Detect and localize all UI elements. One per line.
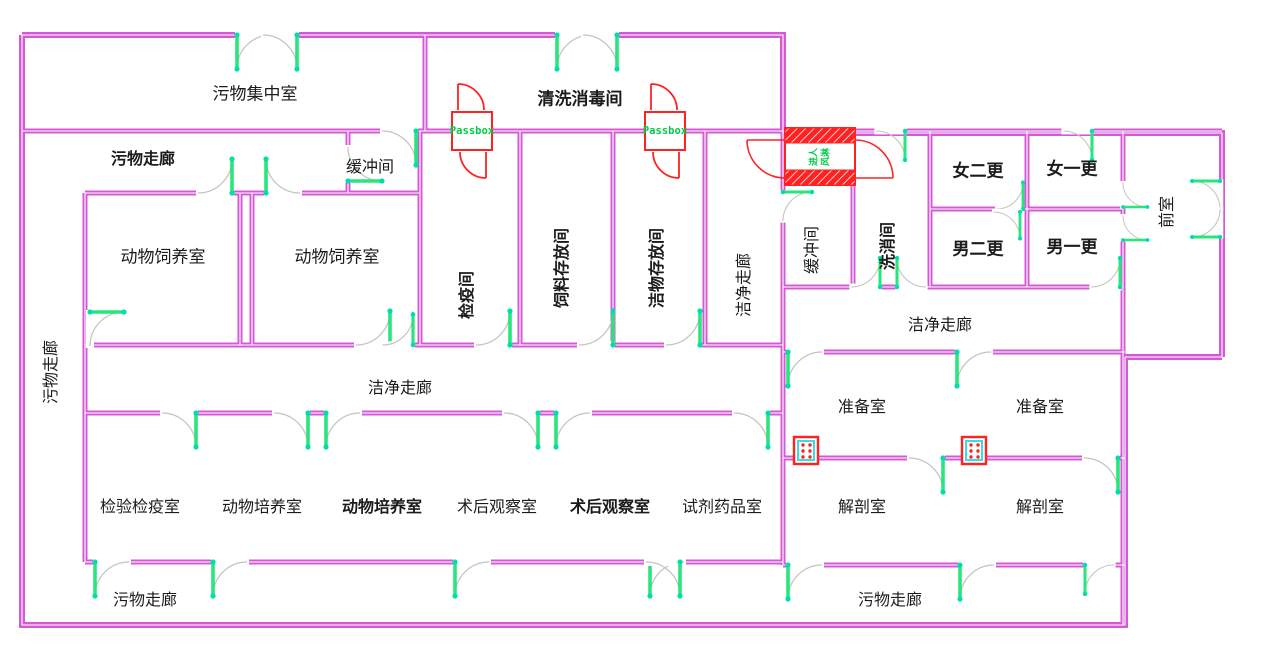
- room-label-quarantine: 检疫间: [457, 271, 476, 319]
- room-label-cleaning-disinfection: 清洗消毒间: [538, 88, 623, 108]
- door-swing: [452, 558, 491, 599]
- room-label-feed-storage: 饲料存放间: [552, 228, 571, 309]
- air-shower-label-line1: 进人: [807, 147, 818, 166]
- passbox-2-label: Passbox: [643, 125, 688, 137]
- door-swing: [785, 561, 824, 602]
- door-swing: [780, 190, 815, 223]
- room-label-animal-culture-1: 动物培养室: [222, 498, 302, 516]
- room-label-animal-feeding-2: 动物饲养室: [295, 247, 380, 266]
- door-swing: [992, 209, 1022, 241]
- door-swing: [263, 156, 302, 197]
- door-swing: [196, 156, 235, 197]
- door-swing: [581, 31, 620, 72]
- room-label-washing: 洗消间: [878, 222, 897, 270]
- door-swing: [874, 128, 907, 163]
- door-swing: [1120, 181, 1149, 209]
- door-swing: [261, 31, 300, 72]
- passbox-1-label: Passbox: [450, 125, 495, 137]
- door-swing: [957, 561, 996, 602]
- room-label-preparation-1: 准备室: [838, 398, 886, 416]
- corridor-label-clean-right: 洁净走廊: [908, 316, 972, 334]
- room-label-animal-feeding-1: 动物饲养室: [121, 247, 206, 266]
- room-label-buffer-top: 缓冲间: [346, 158, 394, 176]
- walls: [22, 35, 1222, 625]
- room-label-male-change-1: 男一更: [1047, 237, 1099, 256]
- outer-walls: [22, 35, 1222, 625]
- room-label-inspection-quarantine: 检验检疫室: [100, 498, 180, 516]
- door-swing: [1089, 256, 1122, 291]
- door-swing: [160, 409, 199, 450]
- door-swing: [954, 348, 993, 389]
- door-swing: [553, 409, 592, 450]
- door-swing: [381, 312, 416, 349]
- door-swing: [1190, 179, 1223, 211]
- room-label-buffer-vertical: 缓冲间: [803, 226, 821, 274]
- door-swing: [1082, 454, 1121, 495]
- door-swing: [1083, 562, 1116, 597]
- room-label-dissection-2: 解剖室: [1016, 498, 1064, 516]
- door-swing: [785, 348, 824, 389]
- door-swing: [210, 558, 249, 599]
- door-swing: [577, 308, 616, 349]
- door-swing: [1190, 207, 1223, 239]
- room-label-clean-storage: 洁物存放间: [647, 228, 666, 308]
- floor-plan-svg: 污物集中室 清洗消毒间 污物走廊 缓冲间 动物饲养室 动物饲养室 检疫间 饲料存…: [0, 0, 1262, 657]
- door-swing: [272, 409, 311, 450]
- corridor-label-clean-vertical: 洁净走廊: [735, 253, 753, 317]
- wall-core-lines: [22, 35, 1222, 625]
- room-label-female-change-1: 女一更: [1047, 158, 1099, 178]
- room-label-dissection-1: 解剖室: [838, 498, 886, 516]
- corridor-label-waste-left: 污物走廊: [42, 340, 60, 404]
- door-swing: [86, 309, 127, 348]
- room-label-anteroom: 前室: [1158, 196, 1176, 228]
- floor-plan-canvas: 污物集中室 清洗消毒间 污物走廊 缓冲间 动物饲养室 动物饲养室 检疫间 饲料存…: [0, 0, 1262, 657]
- door-swing: [502, 409, 541, 450]
- room-label-female-change-2: 女二更: [953, 160, 1005, 180]
- door-swing: [1120, 214, 1149, 242]
- door-swing: [732, 409, 771, 450]
- air-shower-label-line2: 风淋: [819, 148, 830, 166]
- room-label-male-change-2: 男二更: [953, 239, 1005, 258]
- door-swing: [323, 409, 362, 450]
- room-label-postop-observation-2: 术后观察室: [569, 497, 650, 516]
- room-label-reagent-medicine: 试剂药品室: [682, 498, 762, 516]
- door-swing: [907, 454, 946, 495]
- room-label-preparation-2: 准备室: [1016, 398, 1064, 416]
- room-label-animal-culture-2: 动物培养室: [342, 497, 422, 516]
- transfer-window-2: [962, 437, 986, 464]
- room-label-waste-collection: 污物集中室: [213, 84, 298, 103]
- door-swing: [895, 256, 928, 291]
- corridor-label-clean-middle: 洁净走廊: [368, 379, 432, 397]
- door-swing: [474, 308, 513, 349]
- corridor-label-waste-top: 污物走廊: [111, 149, 175, 168]
- transfer-window-1: [794, 437, 818, 464]
- door-swing: [1061, 128, 1094, 163]
- room-label-postop-observation-1: 术后观察室: [457, 498, 537, 516]
- corridor-label-waste-bottom-left: 污物走廊: [113, 591, 177, 609]
- corridor-label-waste-bottom-right: 污物走廊: [858, 591, 922, 609]
- door-swing: [995, 180, 1025, 212]
- door-swing: [664, 308, 703, 349]
